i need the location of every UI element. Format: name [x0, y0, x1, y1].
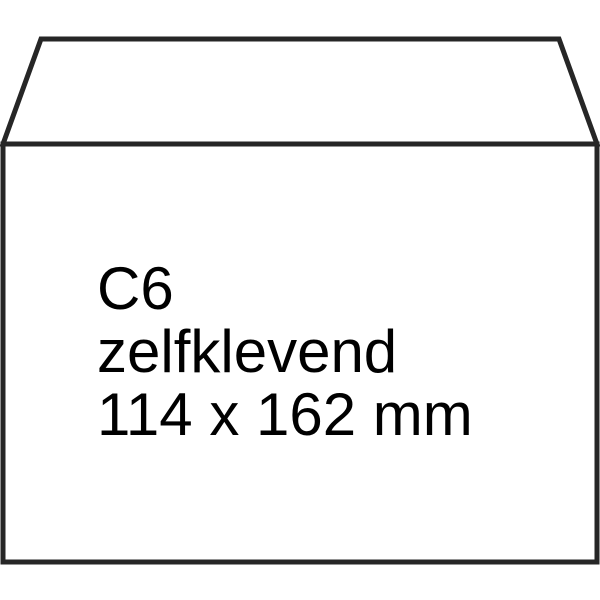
envelope-flap [3, 39, 597, 144]
product-label-size-class: C6 [97, 257, 473, 320]
product-label: C6 zelfklevend 114 x 162 mm [97, 257, 473, 446]
product-label-dimensions: 114 x 162 mm [97, 383, 473, 446]
product-label-seal-type: zelfklevend [97, 320, 473, 383]
product-image: C6 zelfklevend 114 x 162 mm [0, 0, 600, 600]
